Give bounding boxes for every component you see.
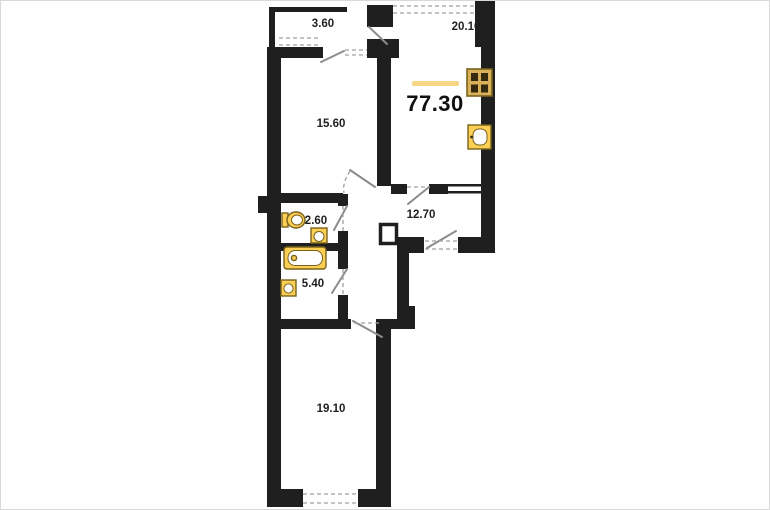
wall-outer-left-lower xyxy=(267,203,281,506)
wall-bedroom-kitchen-divider xyxy=(377,46,391,186)
labels: 77.30 3.60 20.10 15.60 12.70 2.60 5.40 1… xyxy=(302,18,481,415)
bedroom2-window xyxy=(303,494,358,503)
area-label-hallway: 12.70 xyxy=(407,209,436,221)
kitchen-window xyxy=(393,6,475,13)
wall-hall-kitchen-partition-b xyxy=(448,191,482,194)
area-label-balcony: 3.60 xyxy=(312,18,334,30)
area-label-bedroom: 15.60 xyxy=(317,118,346,130)
wall-outer-left-upper xyxy=(267,47,281,203)
wall-bedroom-bottom xyxy=(267,193,343,203)
floor-plan-page: 77.30 3.60 20.10 15.60 12.70 2.60 5.40 1… xyxy=(0,0,770,510)
wall-hall-bottom-right xyxy=(458,237,495,253)
kitchen-sink-icon xyxy=(468,125,491,149)
washbasin-2-icon xyxy=(281,280,296,296)
wall-bedroom-top xyxy=(267,47,323,58)
wall-balcony-top xyxy=(269,7,347,12)
entrance-door-leaf xyxy=(427,231,456,248)
balcony-glazing-dashes xyxy=(279,38,321,45)
stove-icon xyxy=(467,69,492,96)
kitchen-door-leaf xyxy=(408,187,429,204)
wall-room2-bottom-left xyxy=(267,489,303,507)
area-label-bedroom2: 19.10 xyxy=(317,403,346,415)
bedroom-door-leaf xyxy=(350,170,375,187)
wall-balcony-left xyxy=(269,7,275,49)
wall-bath-bottom xyxy=(267,319,351,329)
floor-plan: 77.30 3.60 20.10 15.60 12.70 2.60 5.40 1… xyxy=(1,1,770,510)
area-label-kitchen-living: 20.10 xyxy=(452,21,481,33)
bedroom-door-swing xyxy=(344,171,350,193)
wall-hall-kitchen-partition-a xyxy=(448,184,482,187)
bedroom-balcony-window xyxy=(345,50,367,55)
wc-door-leaf xyxy=(334,206,347,230)
wall-bath-right-bottom xyxy=(338,295,348,319)
wall-room2-right xyxy=(376,319,391,506)
washbasin-icon xyxy=(311,228,327,243)
wall-room2-bottom-right xyxy=(358,489,391,507)
area-label-wc: 2.60 xyxy=(305,215,327,227)
total-area-underline xyxy=(412,81,459,86)
balcony-door-leaf xyxy=(321,51,344,62)
wall-pillar-kitchen-topleft xyxy=(367,5,393,27)
total-area-label: 77.30 xyxy=(406,91,464,116)
wall-hall-top-mid xyxy=(429,184,448,194)
wall-bath-right-top xyxy=(338,251,348,269)
toilet-icon xyxy=(282,212,305,228)
wall-hall-top-left xyxy=(391,184,407,194)
ventilation-shaft xyxy=(381,225,397,244)
wall-wc-right-top xyxy=(338,194,348,206)
bathtub-icon xyxy=(284,247,326,269)
area-label-bathroom: 5.40 xyxy=(302,278,324,290)
bathroom-door-leaf xyxy=(332,269,347,293)
